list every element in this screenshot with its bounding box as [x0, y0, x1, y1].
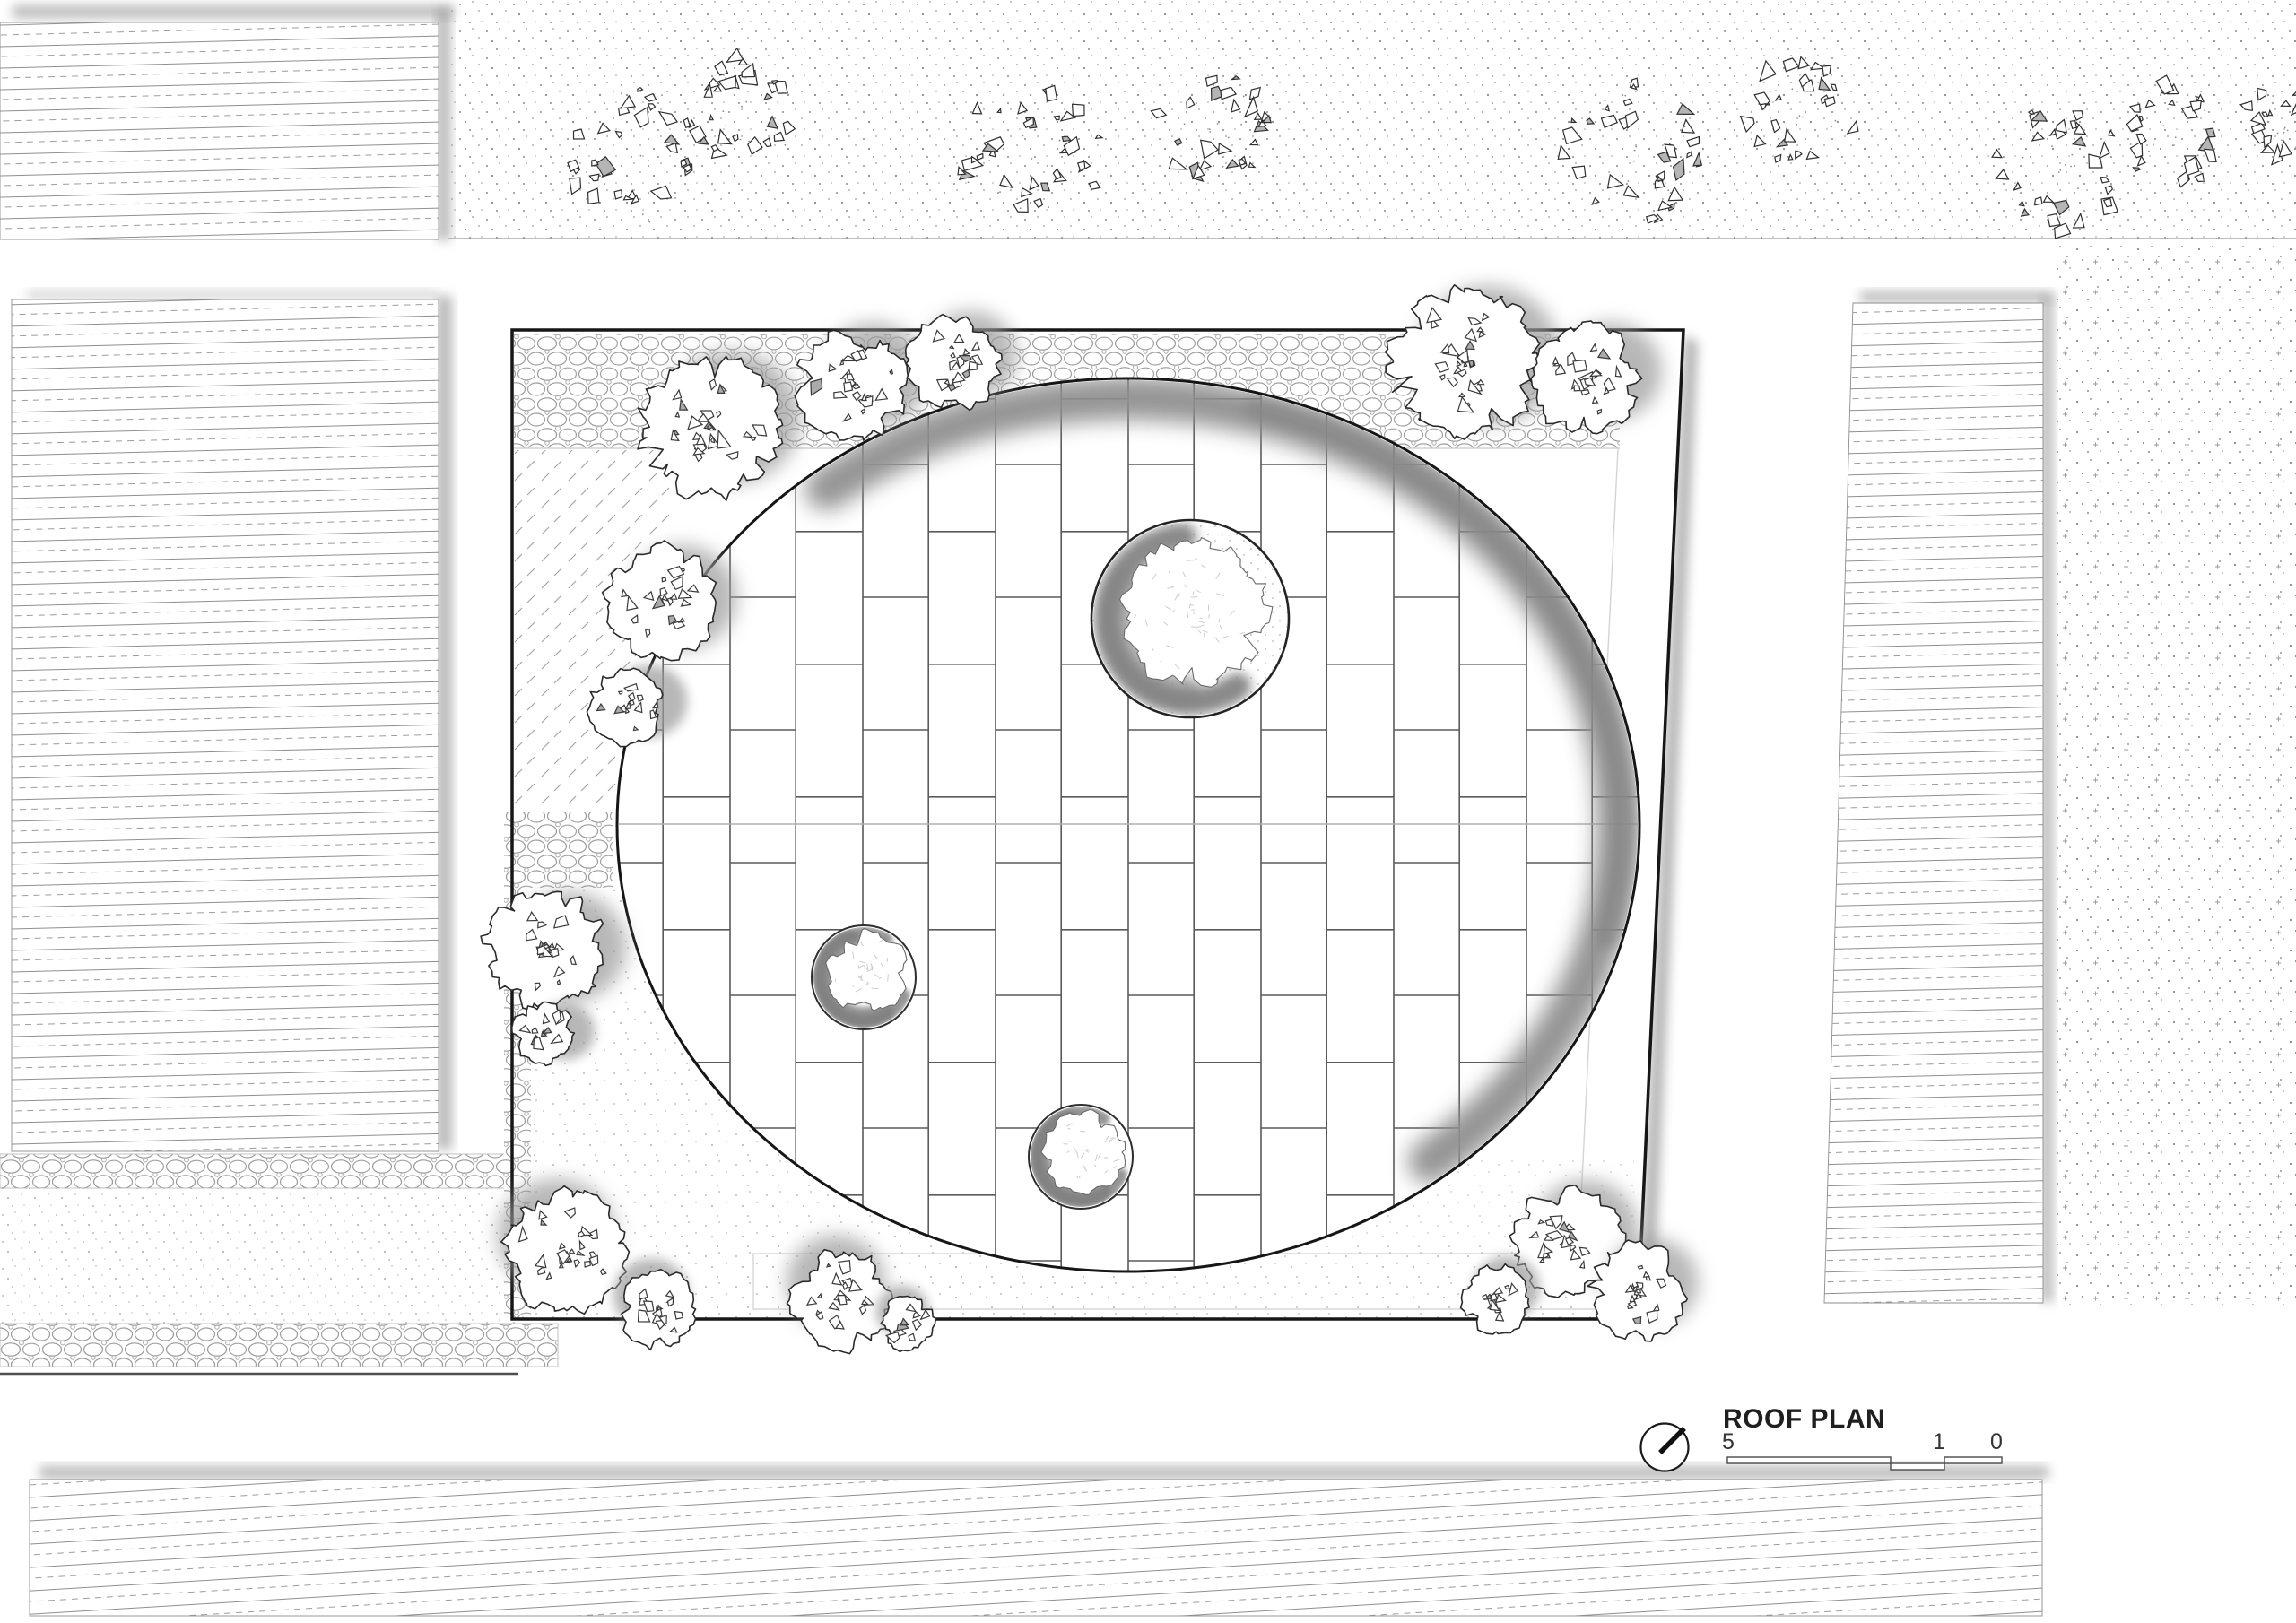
top-left-building-roof — [0, 22, 439, 239]
scale-label-5: 5 — [1722, 1429, 1735, 1454]
planting-bed-lower-left — [0, 1188, 516, 1324]
scale-label-0: 0 — [1990, 1429, 2003, 1454]
drawing-title: ROOF PLAN — [1723, 1404, 1885, 1434]
roof-plan-canvas: ROOF PLAN 5 1 0 — [0, 0, 2296, 1623]
tree-planter — [812, 925, 916, 1029]
north-arrow-icon — [1641, 1424, 1689, 1471]
scale-bar: 5 1 0 — [1722, 1429, 2003, 1470]
planting-strip-top — [448, 0, 2296, 239]
pebble-patch-left — [504, 811, 613, 888]
pebble-path-upper-left — [0, 1154, 516, 1188]
pebble-path-lower-left — [0, 1324, 558, 1367]
gravel-field-right — [2054, 239, 2296, 1305]
bottom-building-roof — [30, 1480, 2042, 1616]
title-block: ROOF PLAN 5 1 0 — [1641, 1404, 2003, 1471]
right-building-roof — [1824, 303, 2043, 1303]
tree-planter — [1091, 520, 1289, 717]
scale-label-1: 1 — [1933, 1429, 1945, 1454]
tree-planter — [1029, 1105, 1133, 1209]
left-building-roof — [12, 299, 439, 1151]
